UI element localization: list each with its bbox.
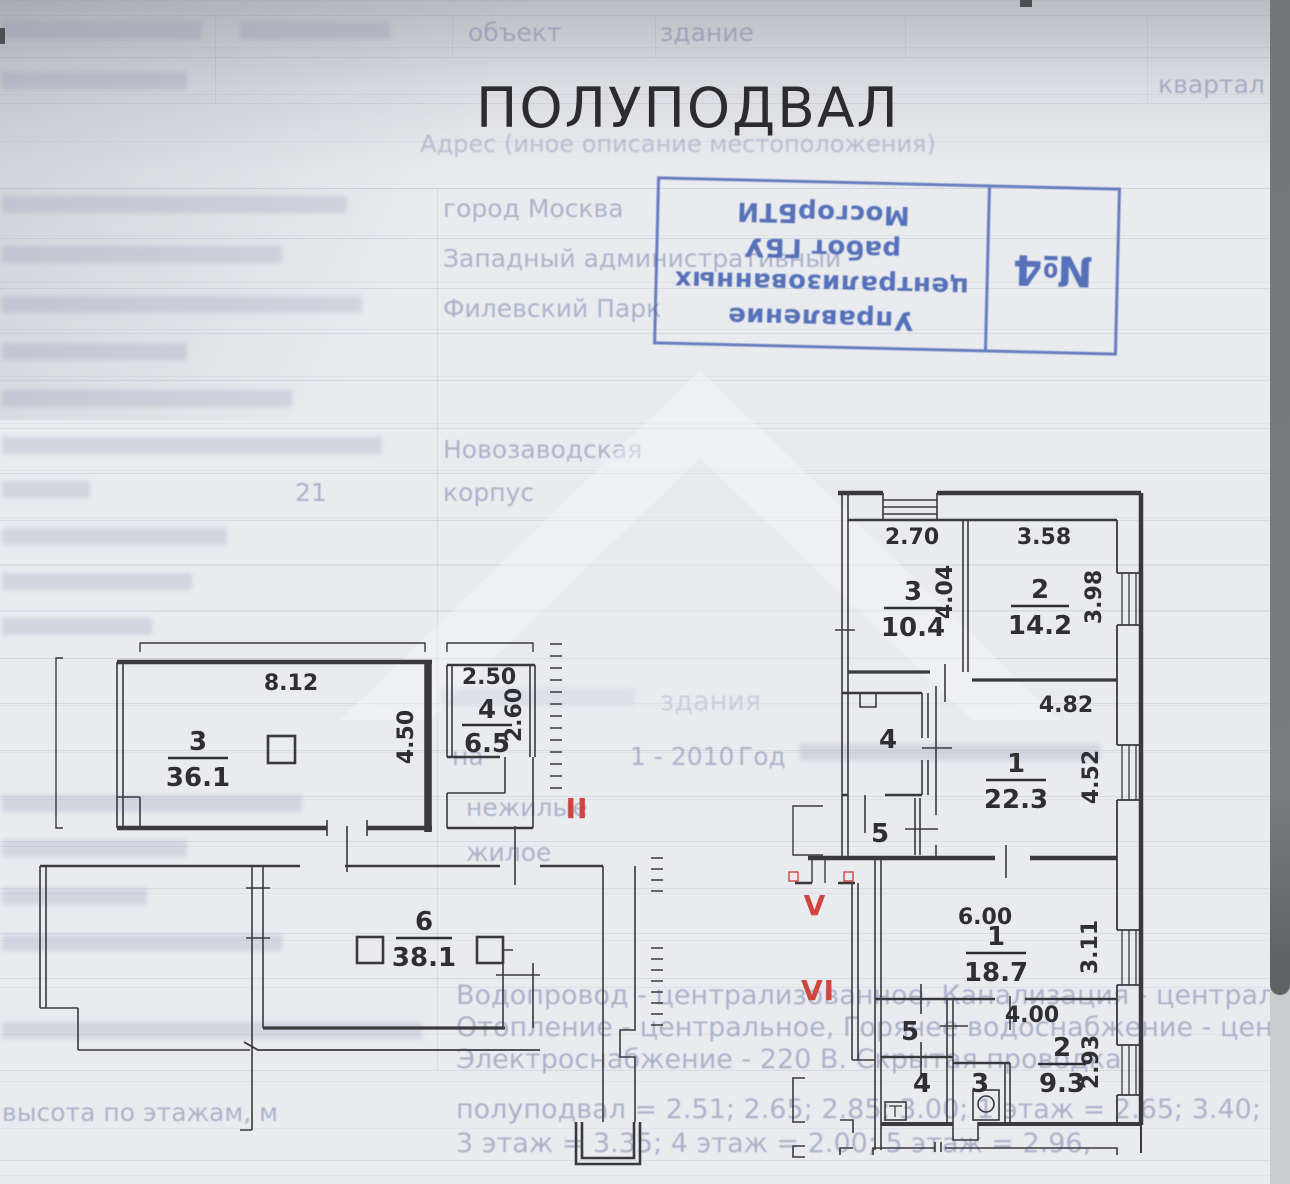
dim-4-52: 4.52 <box>1079 750 1104 804</box>
corridor-walls <box>603 866 635 1122</box>
boundary-hatch-lower <box>651 858 663 1025</box>
lower-block-left-wall <box>875 858 881 1150</box>
dim-3-58: 3.58 <box>1017 525 1071 550</box>
floor-plan-svg: 3 36.1 4 6.5 6 38.1 3 10.4 2 14.2 1 22.3 <box>0 0 1290 1184</box>
room-number: 1 <box>1007 749 1025 779</box>
dim-8-12: 8.12 <box>264 671 318 696</box>
room381-bottom-thin-wall <box>244 1042 540 1050</box>
room-number-5-lower: 5 <box>901 1017 919 1047</box>
room36-walls-thin <box>117 662 140 828</box>
dim-4-82: 4.82 <box>1039 693 1093 718</box>
room-number-3-lower: 3 <box>971 1069 989 1099</box>
dim-2-50: 2.50 <box>462 665 516 690</box>
dim-3-98: 3.98 <box>1082 570 1107 624</box>
dim-4-04: 4.04 <box>933 565 958 619</box>
room-number-5-upper: 5 <box>871 819 889 849</box>
room-area: 36.1 <box>166 763 230 793</box>
dim-4-50: 4.50 <box>394 710 419 764</box>
room-area: 22.3 <box>984 785 1048 815</box>
section-numeral-II: II <box>566 792 589 825</box>
watermark-chevron <box>340 370 1060 720</box>
room-label-18-7: 1 18.7 <box>964 922 1028 988</box>
column <box>268 736 295 763</box>
room-label-36-1: 3 36.1 <box>166 727 230 793</box>
room-label-22-3: 1 22.3 <box>984 749 1048 815</box>
dim-2-70: 2.70 <box>885 525 939 550</box>
dim-3-11: 3.11 <box>1078 920 1103 974</box>
window-caps <box>1117 573 1141 1095</box>
red-entry-mark <box>844 872 853 881</box>
room381-walls-thin <box>40 866 270 1130</box>
room-number: 6 <box>415 907 433 937</box>
room-area: 38.1 <box>392 943 456 973</box>
room-label-14-2: 2 14.2 <box>1008 575 1072 641</box>
room-number: 4 <box>478 695 496 725</box>
entry-stair-box <box>576 1122 640 1164</box>
scan-edge-dark-bar <box>1270 0 1290 995</box>
window-mullions <box>1122 573 1136 1095</box>
room-number: 2 <box>1031 575 1049 605</box>
dim-4-00: 4.00 <box>1005 1003 1059 1028</box>
room-number: 3 <box>189 727 207 757</box>
porch-vestibule-walls <box>852 883 875 1060</box>
scanned-bti-floorplan-page: объект здание квартал № город Москва Зап… <box>0 0 1290 1184</box>
dim-2-93: 2.93 <box>1079 1035 1104 1089</box>
red-entry-mark <box>789 872 798 881</box>
room-area: 14.2 <box>1008 611 1072 641</box>
dim-6-00: 6.00 <box>958 905 1012 930</box>
room-number: 2 <box>1053 1033 1071 1063</box>
stairs <box>883 493 937 520</box>
room-number-4-lower: 4 <box>913 1069 931 1099</box>
scan-artifact-tick <box>0 28 5 44</box>
scan-artifact-tick <box>1020 0 1032 7</box>
room-label-38-1: 6 38.1 <box>392 907 456 973</box>
room-number-4-upper: 4 <box>879 725 897 755</box>
sink-tap <box>889 1106 902 1117</box>
section-numeral-VI: VI <box>801 974 835 1007</box>
column <box>477 937 503 963</box>
column <box>357 937 383 963</box>
section-numeral-V: V <box>804 889 827 922</box>
room-area: 18.7 <box>964 958 1028 988</box>
room-number: 3 <box>904 577 922 607</box>
dim-2-60: 2.60 <box>502 688 527 742</box>
